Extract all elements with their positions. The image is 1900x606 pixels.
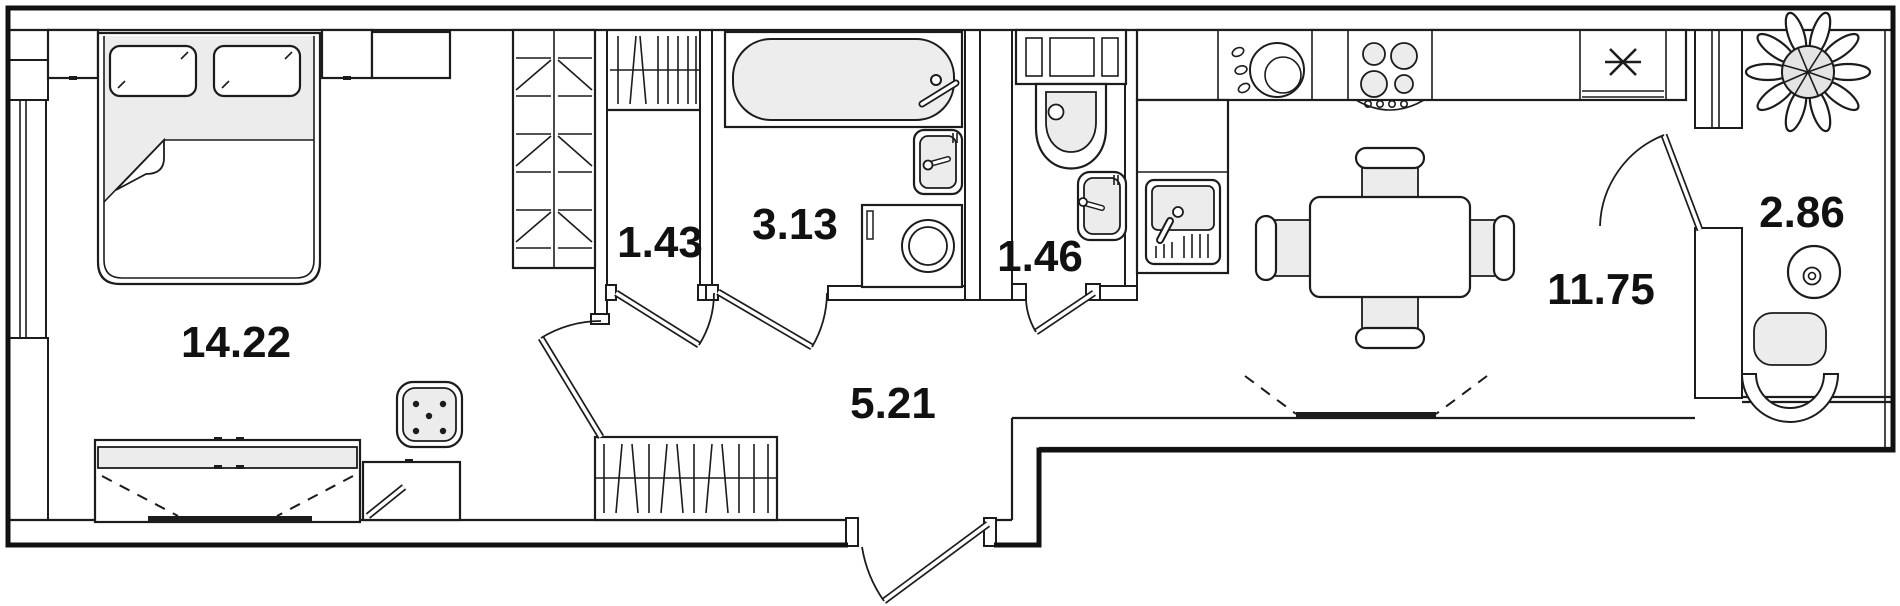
door-jamb [846,518,858,546]
room-label-kitchen-living: 11.75 [1547,265,1655,314]
prep-sink [1146,180,1220,264]
wall-segment [8,60,48,100]
wall-segment [8,338,48,520]
kitchen [1137,30,1686,418]
kitchen-sink [1231,43,1304,97]
bathroom-door [718,292,827,347]
washing-machine [862,205,962,287]
kitchen-window [1245,376,1487,418]
entrance-door [862,524,988,601]
tv-stand [95,437,360,522]
pillow [214,46,300,96]
floor-plan: 14.22 1.43 3.13 1.46 5.21 11.75 2.86 [0,0,1900,606]
room-label-bathroom: 3.13 [752,200,838,249]
wall-balcony-stub [1695,228,1742,398]
nightstand [322,30,372,78]
hand-basin [1078,172,1126,240]
clothes-rail [607,36,700,110]
balcony-table [1788,246,1840,298]
bedroom-door [541,321,601,437]
nightstand-handle [69,76,77,80]
storage-cabinet [363,459,460,520]
nightstand [48,30,98,78]
dining-table [1310,197,1470,297]
wall-bath-right [965,30,980,300]
coat-rack [595,437,777,520]
window-left [8,100,46,338]
room-label-wc: 1.46 [997,232,1083,281]
pillow [110,46,196,96]
dresser [372,32,450,78]
tv [148,516,312,521]
double-bed [98,33,320,284]
door-jamb [606,285,616,300]
balcony-door [1600,135,1700,230]
wc-fixtures [1016,30,1126,240]
wall-bedroom-hall [595,30,607,320]
room-label-hallway: 5.21 [850,379,936,428]
washbasin [914,130,962,194]
nightstand-handle [343,76,351,80]
bathtub [725,32,962,127]
room-label-balcony: 2.86 [1759,188,1845,237]
pouf [397,382,462,447]
toilet [1016,30,1126,169]
wall-bath-bottom [828,286,965,300]
door-jamb [1012,284,1026,300]
door-jamb [591,314,609,324]
wall-wc-bottom [1100,286,1137,300]
room-label-closet: 1.43 [617,218,703,267]
dining-group [1256,148,1514,348]
room-label-bedroom: 14.22 [181,318,291,367]
floor-plan-canvas: 14.22 1.43 3.13 1.46 5.21 11.75 2.86 [0,0,1900,606]
wardrobe [513,30,595,268]
door-jamb [706,285,718,300]
bedroom-furniture [48,30,595,522]
wc-door [1026,293,1094,332]
balcony-chair [1742,313,1838,422]
